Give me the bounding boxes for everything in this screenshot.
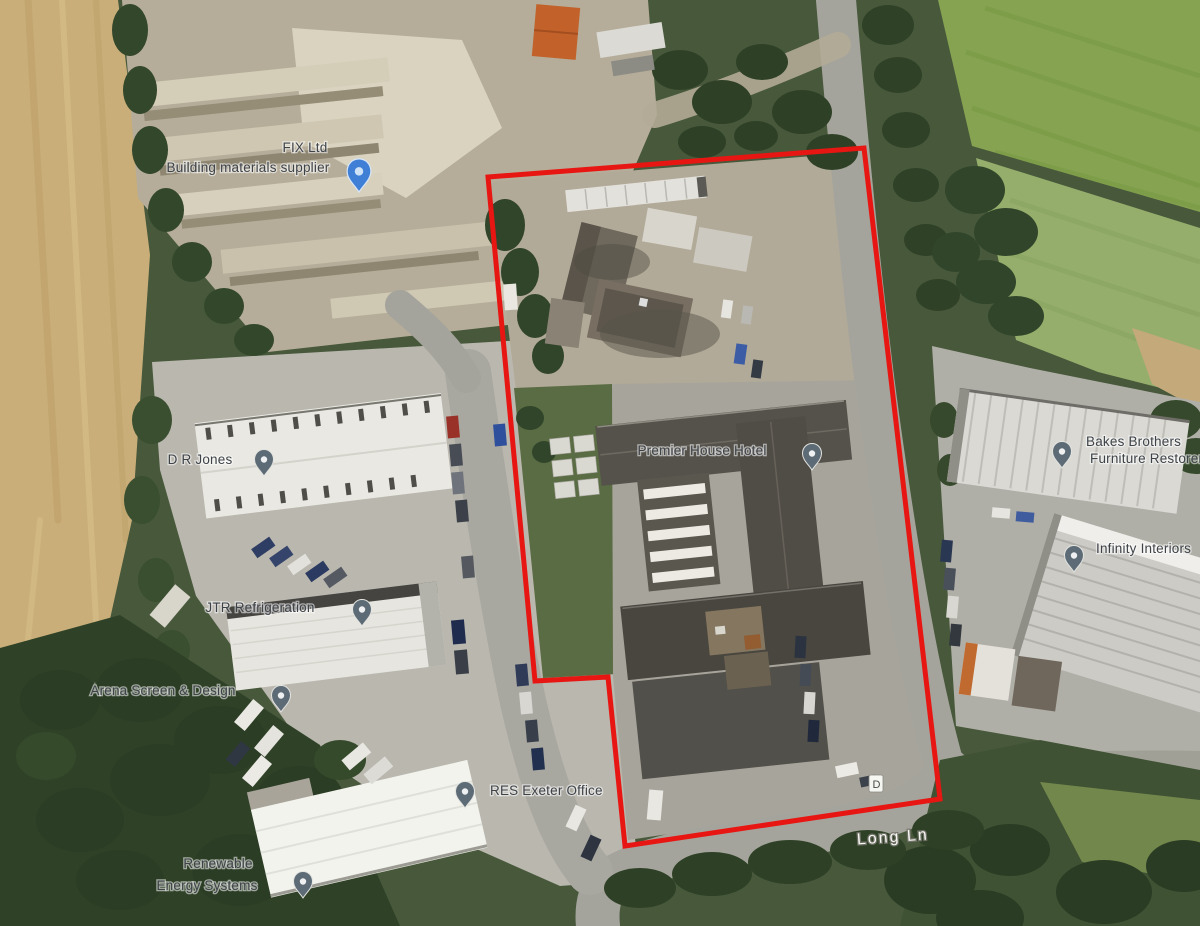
satellite-map[interactable]: D FIX Ltd Building <box>0 0 1200 926</box>
poi-label-fix-name[interactable]: FIX Ltd <box>283 140 328 155</box>
poi-label-renewable-2[interactable]: Energy Systems <box>156 878 257 893</box>
parcel-marker-d: D <box>869 775 883 792</box>
poi-label-interiors[interactable]: Infinity Interiors <box>1096 541 1191 556</box>
poi-label-jtr[interactable]: JTR Refrigeration <box>205 600 314 615</box>
poi-label-fix-subtitle[interactable]: Building materials supplier <box>167 160 330 175</box>
poi-label-renewable-1[interactable]: Renewable <box>183 856 252 871</box>
poi-label-premier[interactable]: Premier House Hotel <box>637 443 766 458</box>
poi-label-furniture-1[interactable]: Bakes Brothers <box>1086 434 1181 449</box>
poi-label-dr-jones[interactable]: D R Jones <box>168 452 233 467</box>
poi-label-arena[interactable]: Arena Screen & Design <box>90 683 235 698</box>
poi-label-furniture-2[interactable]: Furniture Restorers <box>1090 451 1200 466</box>
poi-label-res[interactable]: RES Exeter Office <box>490 783 603 798</box>
parcel-marker-letter: D <box>873 779 881 791</box>
